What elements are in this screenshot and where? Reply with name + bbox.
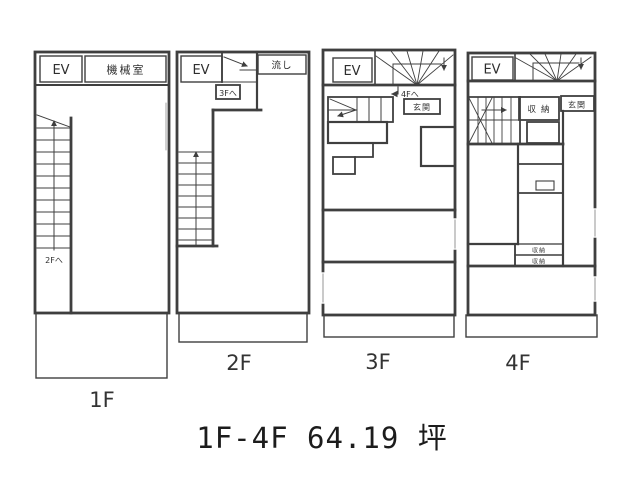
stairs-3f — [328, 97, 393, 122]
area-caption: 1F-4F 64.19 坪 — [196, 421, 448, 455]
outer-wall-2f — [177, 52, 309, 313]
floor-label-3f: 3F — [365, 350, 390, 374]
storage-label-4f: 収納 — [527, 104, 554, 115]
stairs-2f — [179, 152, 212, 246]
ev-label-3f: EV — [343, 64, 360, 79]
floor-plan-4f: EV 収納 — [466, 53, 597, 375]
ev-label-2f: EV — [192, 63, 209, 78]
ev-room-4f: EV — [472, 57, 513, 80]
machine-room-1f: 機械室 — [85, 56, 166, 82]
outer-wall-3f — [323, 50, 455, 315]
floorplan-canvas: EV 機械室 2Fへ 1F — [0, 0, 640, 480]
stairs-1f: 2Fへ — [37, 115, 71, 313]
winder-stairs-4f — [515, 53, 591, 81]
floorplan-sheet: EV 機械室 2Fへ 1F — [0, 0, 640, 480]
ev-room-2f: EV — [181, 56, 222, 82]
storage-small-1-4f: 収納 — [515, 244, 563, 255]
sub-closet-4f — [527, 122, 559, 143]
balcony-2f — [179, 313, 307, 342]
storage-small-2-4f: 収納 — [515, 255, 563, 266]
entrance-4f: 玄関 — [561, 96, 594, 111]
stairs-direction-arrow-2f — [224, 57, 247, 66]
winder-stairs-3f — [375, 50, 453, 85]
ev-room-1f: EV — [40, 56, 82, 82]
storage-4f: 収納 — [519, 97, 559, 120]
wall-step-3f — [355, 143, 373, 157]
ev-room-3f: EV — [333, 58, 372, 82]
right-closet-3f — [421, 127, 455, 166]
stair-note-3f: 4Fへ — [401, 90, 419, 99]
stair-note-2f: 3Fへ — [219, 89, 237, 98]
sink-label: 流し — [271, 60, 292, 72]
entrance-label-4f: 玄関 — [568, 100, 586, 110]
floor-plan-2f: EV 3Fへ 流し 2F — [177, 52, 309, 375]
balcony-4f — [466, 315, 597, 337]
balcony-3f — [324, 315, 454, 337]
machine-room-label: 機械室 — [107, 63, 146, 77]
storage-small-1-label: 収納 — [532, 247, 546, 255]
ev-label-4f: EV — [483, 63, 500, 78]
outer-wall-1f — [35, 52, 169, 313]
floor-label-1f: 1F — [89, 388, 114, 412]
closet-3f — [328, 122, 387, 143]
toilet-4f — [536, 181, 554, 190]
storage-small-2-label: 収納 — [532, 258, 546, 266]
entrance-3f: 玄関 — [404, 99, 440, 114]
ev-label-1f: EV — [52, 63, 69, 78]
stairs-down-arrow-3f — [338, 110, 356, 116]
outer-wall-4f — [468, 53, 595, 315]
floor-label-4f: 4F — [505, 351, 530, 375]
entrance-label-3f: 玄関 — [413, 102, 431, 112]
stair-note-group-3f: 4Fへ — [392, 87, 419, 99]
winder-stairs-2f: 3Fへ — [216, 52, 257, 110]
stair-note-arrow-3f — [392, 87, 398, 94]
sink-area-2f: 流し — [258, 55, 306, 74]
porch-1f — [36, 313, 167, 378]
floor-plan-3f: EV 4Fへ 玄関 — [323, 50, 455, 374]
floor-plan-1f: EV 機械室 2Fへ 1F — [35, 52, 169, 412]
stair-note-1f: 2Fへ — [45, 256, 63, 265]
floor-label-2f: 2F — [226, 351, 251, 375]
stairs-4f — [468, 97, 520, 144]
small-closet-3f — [333, 157, 355, 174]
